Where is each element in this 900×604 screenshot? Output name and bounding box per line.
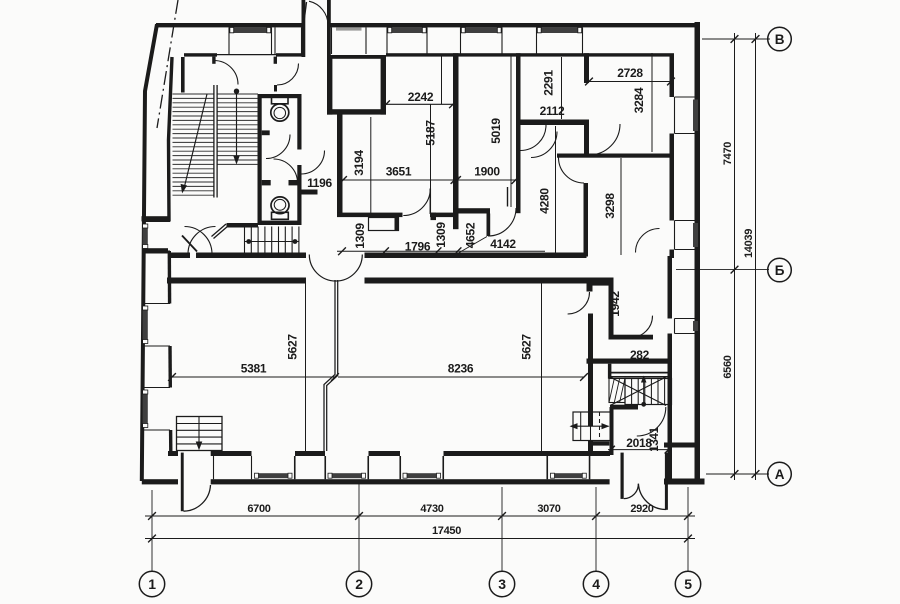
svg-text:1341: 1341 bbox=[649, 426, 661, 451]
svg-text:1942: 1942 bbox=[608, 291, 622, 317]
svg-text:3651: 3651 bbox=[386, 165, 412, 179]
svg-text:1309: 1309 bbox=[353, 223, 367, 249]
svg-text:А: А bbox=[775, 467, 785, 482]
svg-text:5: 5 bbox=[684, 576, 692, 592]
svg-text:1900: 1900 bbox=[474, 165, 500, 179]
svg-text:2920: 2920 bbox=[630, 503, 653, 515]
svg-text:3298: 3298 bbox=[603, 193, 617, 219]
svg-text:2291: 2291 bbox=[542, 70, 556, 96]
svg-text:4142: 4142 bbox=[490, 237, 516, 251]
svg-text:2112: 2112 bbox=[540, 104, 565, 118]
svg-text:8236: 8236 bbox=[448, 362, 474, 376]
svg-text:1: 1 bbox=[148, 576, 156, 592]
svg-text:В: В bbox=[775, 32, 785, 47]
svg-text:6560: 6560 bbox=[722, 355, 734, 378]
svg-text:17450: 17450 bbox=[432, 525, 461, 537]
svg-text:2: 2 bbox=[355, 576, 363, 592]
svg-text:1309: 1309 bbox=[434, 222, 448, 248]
svg-text:4280: 4280 bbox=[538, 188, 552, 214]
svg-text:5381: 5381 bbox=[241, 362, 267, 376]
svg-text:2242: 2242 bbox=[408, 90, 434, 104]
svg-text:3284: 3284 bbox=[632, 87, 646, 113]
svg-text:7470: 7470 bbox=[722, 142, 734, 165]
svg-text:3194: 3194 bbox=[352, 150, 366, 176]
svg-text:Б: Б bbox=[775, 263, 785, 278]
svg-text:2728: 2728 bbox=[617, 66, 643, 80]
svg-text:5019: 5019 bbox=[489, 118, 503, 144]
svg-text:4: 4 bbox=[592, 576, 600, 592]
svg-text:3: 3 bbox=[498, 576, 506, 592]
svg-text:3070: 3070 bbox=[537, 503, 560, 515]
svg-text:1196: 1196 bbox=[307, 176, 332, 190]
svg-text:4652: 4652 bbox=[464, 222, 478, 248]
svg-text:6700: 6700 bbox=[247, 503, 270, 515]
svg-text:14039: 14039 bbox=[743, 229, 755, 258]
svg-text:5627: 5627 bbox=[286, 334, 300, 360]
svg-text:4730: 4730 bbox=[420, 503, 443, 515]
svg-text:282: 282 bbox=[630, 348, 650, 362]
svg-text:5627: 5627 bbox=[520, 334, 534, 360]
